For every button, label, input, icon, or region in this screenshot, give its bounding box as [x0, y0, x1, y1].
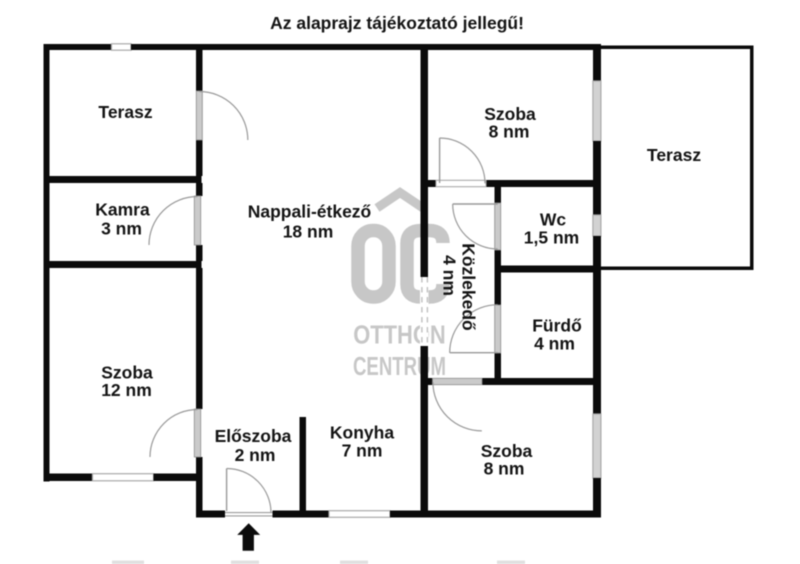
svg-text:Konyha: Konyha	[330, 422, 394, 442]
svg-text:OTTHON: OTTHON	[353, 322, 446, 350]
svg-text:Előszoba: Előszoba	[215, 426, 292, 446]
svg-text:Kamra: Kamra	[95, 199, 150, 219]
svg-text:18 nm: 18 nm	[283, 221, 334, 241]
svg-text:7 nm: 7 nm	[342, 440, 383, 460]
svg-text:CENTRUM: CENTRUM	[353, 353, 446, 381]
svg-text:Terasz: Terasz	[98, 102, 152, 122]
svg-text:Nappali-étkező: Nappali-étkező	[248, 201, 372, 221]
svg-text:Terasz: Terasz	[647, 145, 701, 165]
svg-text:12 nm: 12 nm	[101, 380, 152, 400]
svg-text:4 nm: 4 nm	[534, 333, 575, 353]
svg-text:Közlekedő: Közlekedő	[459, 243, 479, 331]
svg-text:3 nm: 3 nm	[101, 219, 142, 239]
svg-text:2 nm: 2 nm	[235, 445, 276, 465]
svg-text:8 nm: 8 nm	[489, 121, 530, 141]
svg-text:Fürdő: Fürdő	[532, 315, 582, 335]
svg-text:8 nm: 8 nm	[484, 458, 525, 478]
svg-text:1,5 nm: 1,5 nm	[524, 227, 579, 247]
svg-text:Az alaprajz tájékoztató jelleg: Az alaprajz tájékoztató jellegű!	[270, 13, 524, 33]
svg-text:Wc: Wc	[540, 209, 567, 229]
svg-text:4 nm: 4 nm	[440, 255, 460, 296]
